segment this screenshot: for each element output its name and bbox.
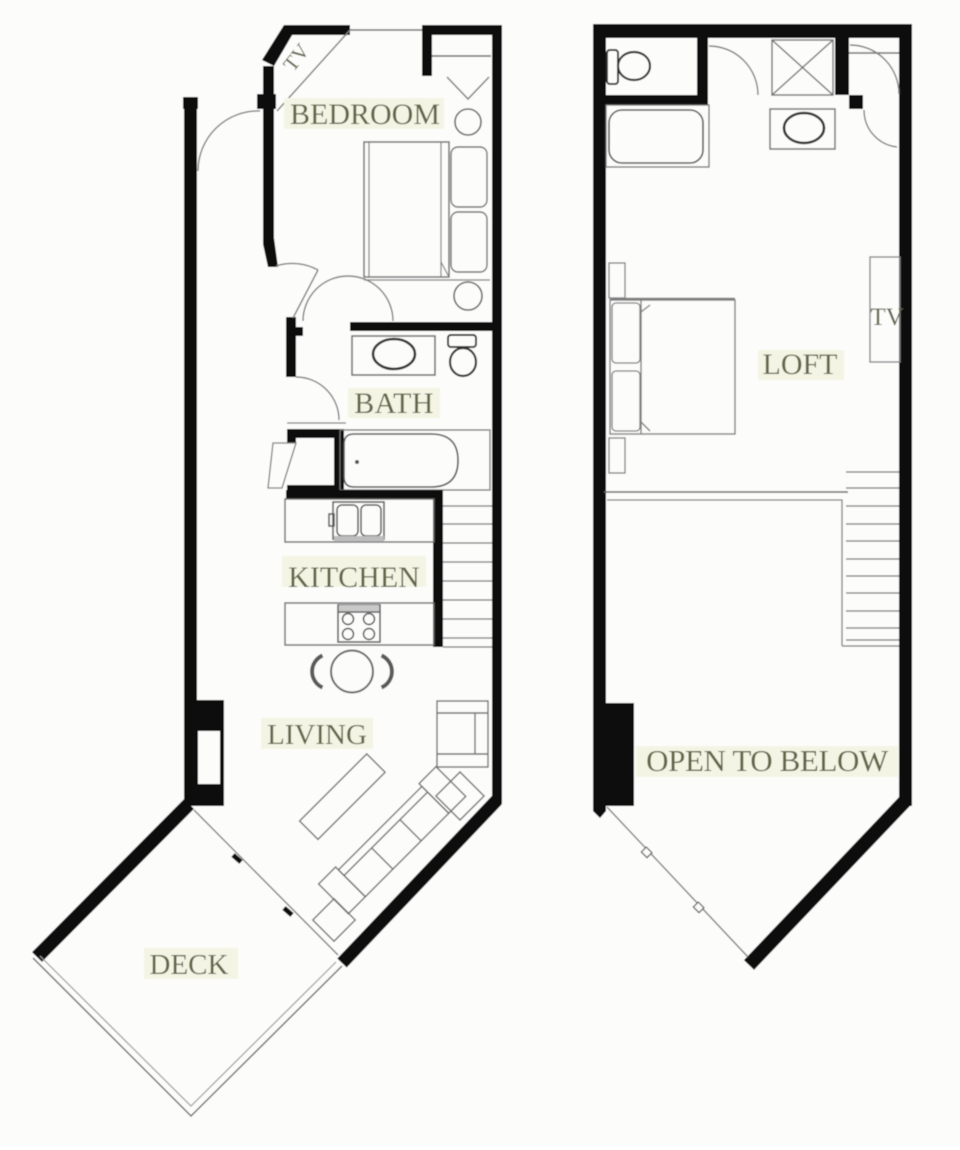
svg-text:LOFT: LOFT [763,348,838,381]
svg-text:BEDROOM: BEDROOM [290,98,440,131]
svg-text:LIVING: LIVING [267,719,367,751]
svg-text:OPEN TO BELOW: OPEN TO BELOW [646,743,889,778]
svg-text:DECK: DECK [150,949,229,981]
svg-text:TV: TV [870,304,903,331]
svg-text:BATH: BATH [354,387,434,420]
svg-text:KITCHEN: KITCHEN [288,561,420,594]
